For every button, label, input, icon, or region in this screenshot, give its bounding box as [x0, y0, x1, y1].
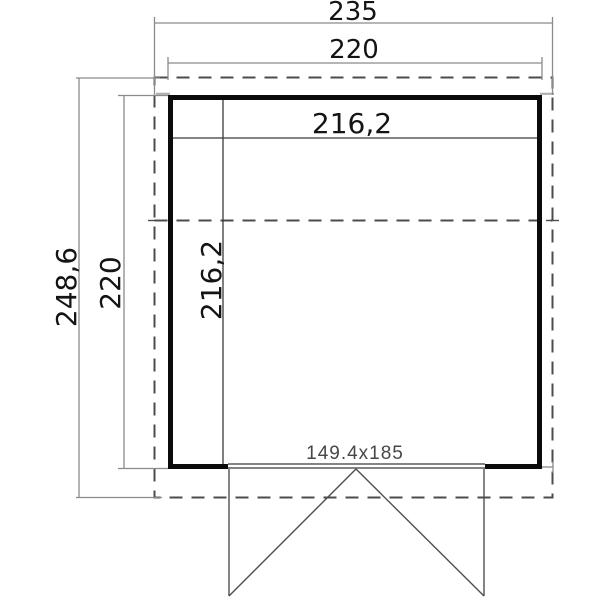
door-size-label: 149.4x185 [306, 443, 404, 464]
dim-label-inner-width: 216,2 [312, 107, 392, 140]
door-leaf-right-swing [356, 469, 484, 596]
floor-plan: 235 220 248,6 220 216,2 216,2 149.4x185 [0, 0, 600, 600]
door-leaf-left-swing [229, 469, 356, 596]
dim-label-overall-width: 235 [328, 0, 378, 27]
dim-label-outer-depth: 220 [94, 256, 127, 309]
floor-plan-canvas: 235 220 248,6 220 216,2 216,2 149.4x185 [0, 0, 600, 600]
dim-label-inner-depth: 216,2 [195, 240, 228, 320]
dim-label-overall-depth: 248,6 [50, 247, 83, 327]
dim-label-outer-width: 220 [329, 35, 379, 65]
